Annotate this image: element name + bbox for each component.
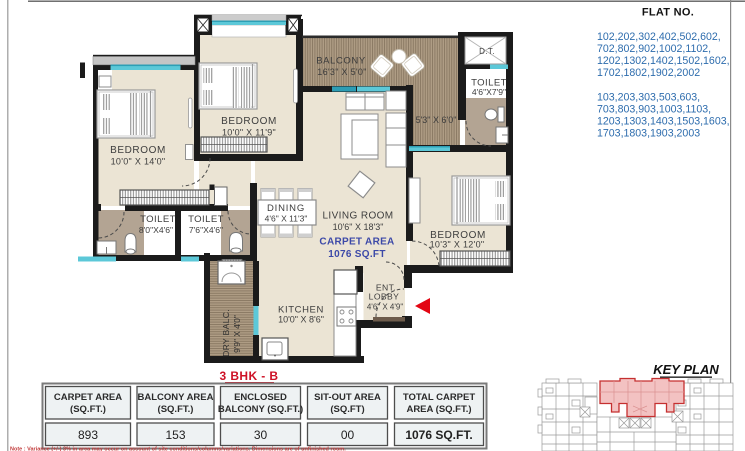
svg-text:153: 153: [165, 428, 185, 442]
svg-text:10'3" X 12'0": 10'3" X 12'0": [430, 240, 485, 250]
svg-text:LIVING ROOM: LIVING ROOM: [322, 211, 393, 222]
svg-text:ENCLOSED: ENCLOSED: [234, 392, 287, 403]
svg-text:893: 893: [78, 428, 98, 442]
svg-text:9'9" X 4'0": 9'9" X 4'0": [232, 315, 242, 353]
svg-text:D.T.: D.T.: [479, 47, 495, 56]
svg-text:10'0" X 8'6": 10'0" X 8'6": [278, 315, 324, 325]
svg-text:CARPET AREA: CARPET AREA: [54, 392, 122, 403]
svg-text:(SQ.FT): (SQ.FT): [330, 404, 364, 415]
svg-text:3 BHK - B: 3 BHK - B: [220, 369, 279, 383]
svg-text:AREA (SQ.FT.): AREA (SQ.FT.): [406, 404, 471, 415]
svg-text:SIT-OUT AREA: SIT-OUT AREA: [314, 392, 381, 403]
svg-text:4'6" X 4'9": 4'6" X 4'9": [367, 303, 403, 312]
svg-text:16'3" X 5'0": 16'3" X 5'0": [317, 67, 366, 77]
svg-text:103,203,303,503,603,: 103,203,303,503,603,: [597, 92, 700, 104]
svg-text:LOBBY: LOBBY: [369, 292, 400, 302]
svg-text:1203,1303,1403,1503,1603,: 1203,1303,1403,1503,1603,: [597, 116, 730, 128]
svg-text:1076 SQ.FT: 1076 SQ.FT: [328, 249, 385, 260]
svg-text:Note : Variance (+/-) 3% in ar: Note : Variance (+/-) 3% in area may occ…: [10, 447, 346, 451]
svg-text:102,202,302,402,502,602,: 102,202,302,402,502,602,: [597, 31, 721, 43]
svg-text:4'6" X 11'3": 4'6" X 11'3": [265, 214, 308, 224]
svg-text:1703,1803,1903,2003: 1703,1803,1903,2003: [597, 128, 700, 140]
svg-text:1202,1302,1402,1502,1602,: 1202,1302,1402,1502,1602,: [597, 55, 730, 67]
svg-text:703,803,903,1003,1103,: 703,803,903,1003,1103,: [597, 104, 711, 116]
svg-text:(SQ.FT.): (SQ.FT.): [158, 404, 194, 415]
svg-text:DINING: DINING: [267, 203, 305, 214]
svg-text:CARPET AREA: CARPET AREA: [319, 237, 394, 248]
svg-text:KEY PLAN: KEY PLAN: [653, 362, 719, 377]
svg-text:702,802,902,1002,1102,: 702,802,902,1002,1102,: [597, 43, 711, 55]
svg-text:4'6"X7'9": 4'6"X7'9": [472, 87, 506, 97]
svg-text:TOTAL CARPET: TOTAL CARPET: [403, 392, 476, 403]
svg-text:BALCONY: BALCONY: [316, 56, 366, 67]
svg-text:BEDROOM: BEDROOM: [221, 116, 277, 127]
svg-text:10'6" X 18'3": 10'6" X 18'3": [333, 222, 384, 232]
svg-text:7'6"X4'6": 7'6"X4'6": [189, 225, 223, 235]
svg-text:BALCONY AREA: BALCONY AREA: [137, 392, 213, 403]
svg-text:10'0" X 14'0": 10'0" X 14'0": [111, 157, 166, 167]
svg-text:BALCONY (SQ.FT.): BALCONY (SQ.FT.): [218, 404, 303, 415]
svg-text:DRY BALC.: DRY BALC.: [221, 309, 231, 357]
svg-text:TOILET: TOILET: [140, 214, 176, 225]
svg-text:5'3" X 6'0": 5'3" X 6'0": [416, 115, 457, 125]
svg-text:30: 30: [254, 428, 268, 442]
svg-text:10'0" X 11'9": 10'0" X 11'9": [222, 128, 276, 138]
svg-text:FLAT NO.: FLAT NO.: [642, 7, 694, 19]
svg-text:8'0"X4'6": 8'0"X4'6": [139, 225, 173, 235]
svg-text:(SQ.FT.): (SQ.FT.): [70, 404, 106, 415]
svg-text:BEDROOM: BEDROOM: [110, 145, 166, 156]
svg-text:00: 00: [341, 428, 355, 442]
svg-text:1076 SQ.FT.: 1076 SQ.FT.: [405, 428, 472, 442]
svg-text:1702,1802,1902,2002: 1702,1802,1902,2002: [597, 67, 700, 79]
svg-text:TOILET: TOILET: [188, 214, 224, 225]
